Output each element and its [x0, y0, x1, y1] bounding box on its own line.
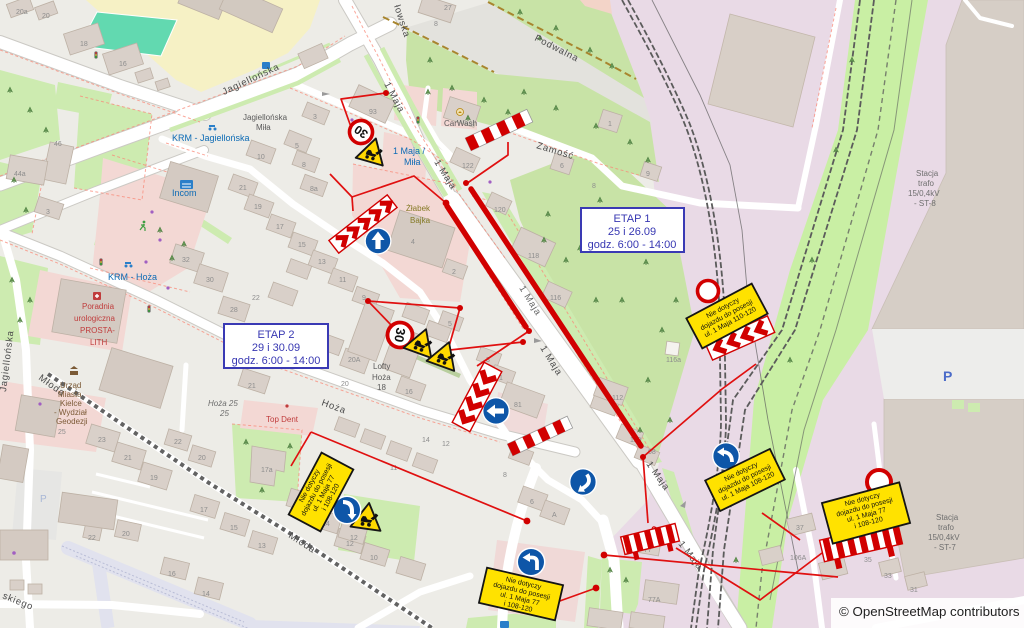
- svg-text:15/0,4kV: 15/0,4kV: [908, 189, 940, 198]
- svg-text:urologiczna: urologiczna: [74, 314, 115, 323]
- svg-text:12: 12: [442, 441, 450, 448]
- svg-text:44a: 44a: [14, 171, 26, 178]
- svg-text:8: 8: [302, 162, 306, 169]
- svg-text:A: A: [552, 512, 557, 519]
- svg-text:31: 31: [910, 587, 918, 594]
- svg-text:27: 27: [444, 5, 452, 12]
- svg-text:93: 93: [369, 109, 377, 116]
- svg-text:15: 15: [230, 525, 238, 532]
- svg-text:28: 28: [230, 307, 238, 314]
- svg-text:3: 3: [313, 114, 317, 121]
- svg-text:9: 9: [646, 171, 650, 178]
- svg-text:14: 14: [422, 437, 430, 444]
- svg-text:P: P: [943, 368, 952, 384]
- svg-text:32: 32: [182, 257, 190, 264]
- svg-text:CarWash: CarWash: [444, 119, 477, 128]
- svg-text:29 i 30.09: 29 i 30.09: [252, 342, 300, 354]
- svg-text:Geodezji: Geodezji: [56, 417, 88, 426]
- svg-text:Urząd: Urząd: [60, 381, 81, 390]
- svg-text:godz. 6:00 - 14:00: godz. 6:00 - 14:00: [232, 355, 321, 367]
- svg-text:8: 8: [434, 21, 438, 28]
- svg-text:20a: 20a: [16, 9, 28, 16]
- svg-text:16: 16: [119, 61, 127, 68]
- svg-text:81: 81: [514, 402, 522, 409]
- svg-text:19: 19: [150, 475, 158, 482]
- svg-text:17: 17: [200, 507, 208, 514]
- svg-text:17a: 17a: [261, 467, 273, 474]
- svg-text:21: 21: [124, 455, 132, 462]
- svg-text:8a: 8a: [310, 186, 318, 193]
- svg-text:15/0,4kV: 15/0,4kV: [928, 533, 960, 542]
- svg-text:Jagiellońska: Jagiellońska: [243, 113, 288, 122]
- svg-text:22: 22: [252, 295, 260, 302]
- svg-text:20A: 20A: [348, 357, 361, 364]
- svg-text:20: 20: [341, 381, 349, 388]
- svg-text:8: 8: [592, 183, 596, 190]
- svg-text:PROSTA-: PROSTA-: [80, 326, 115, 335]
- svg-text:LITH: LITH: [90, 338, 108, 347]
- svg-text:ETAP 2: ETAP 2: [258, 329, 295, 341]
- svg-text:Incom: Incom: [172, 188, 197, 198]
- svg-text:30: 30: [206, 277, 214, 284]
- svg-text:25 i 26.09: 25 i 26.09: [608, 226, 656, 238]
- svg-text:116a: 116a: [666, 357, 681, 364]
- svg-text:18: 18: [80, 41, 88, 48]
- svg-text:118: 118: [528, 253, 539, 260]
- svg-text:Hoża 25: Hoża 25: [208, 399, 238, 408]
- svg-text:13: 13: [318, 259, 326, 266]
- svg-text:15: 15: [298, 242, 306, 249]
- svg-text:Żłabek: Żłabek: [406, 204, 431, 213]
- svg-text:22: 22: [88, 535, 96, 542]
- svg-text:trafo: trafo: [918, 179, 935, 188]
- svg-text:16: 16: [168, 571, 176, 578]
- svg-text:22: 22: [174, 439, 182, 446]
- svg-text:122: 122: [462, 163, 474, 170]
- svg-text:Stacja: Stacja: [936, 513, 959, 522]
- svg-text:19: 19: [254, 204, 262, 211]
- svg-text:77A: 77A: [648, 597, 661, 604]
- svg-text:12: 12: [350, 535, 358, 542]
- svg-text:Top Dent: Top Dent: [266, 415, 299, 424]
- svg-text:8: 8: [503, 472, 507, 479]
- svg-text:16: 16: [405, 389, 413, 396]
- svg-text:P: P: [40, 494, 47, 505]
- svg-text:46: 46: [54, 141, 62, 148]
- svg-text:10: 10: [257, 154, 265, 161]
- svg-text:4: 4: [411, 239, 415, 246]
- svg-text:18: 18: [377, 383, 386, 392]
- svg-text:10: 10: [370, 555, 378, 562]
- svg-text:Miła: Miła: [404, 157, 421, 167]
- svg-text:KRM - Jagiellońska: KRM - Jagiellońska: [172, 133, 250, 143]
- svg-text:godz. 6:00 - 14:00: godz. 6:00 - 14:00: [588, 239, 677, 251]
- svg-text:5: 5: [295, 143, 299, 150]
- svg-text:Lofty: Lofty: [373, 362, 390, 371]
- svg-text:Miła: Miła: [256, 123, 271, 132]
- svg-text:116: 116: [550, 295, 561, 302]
- svg-text:1: 1: [608, 121, 612, 128]
- svg-text:11: 11: [339, 277, 346, 284]
- svg-text:trafo: trafo: [938, 523, 955, 532]
- svg-text:25: 25: [58, 429, 66, 436]
- svg-text:6: 6: [560, 163, 564, 170]
- svg-text:12: 12: [346, 541, 354, 548]
- svg-text:20: 20: [122, 531, 130, 538]
- svg-text:23: 23: [98, 437, 106, 444]
- svg-text:- ST-8: - ST-8: [914, 199, 936, 208]
- svg-text:5: 5: [448, 321, 452, 328]
- svg-text:1 Maja /: 1 Maja /: [393, 146, 426, 156]
- svg-text:14: 14: [202, 591, 210, 598]
- svg-text:25: 25: [219, 409, 229, 418]
- svg-text:- ST-7: - ST-7: [934, 543, 956, 552]
- svg-text:30: 30: [391, 327, 408, 344]
- svg-text:Bajka: Bajka: [410, 216, 431, 225]
- svg-text:- Wydział: - Wydział: [54, 408, 87, 417]
- svg-text:KRM - Hoża: KRM - Hoża: [108, 272, 157, 282]
- svg-text:2: 2: [452, 269, 456, 276]
- svg-text:6: 6: [530, 499, 534, 506]
- svg-text:© OpenStreetMap contributors: © OpenStreetMap contributors: [839, 604, 1020, 619]
- svg-text:21: 21: [248, 383, 256, 390]
- svg-text:20: 20: [198, 455, 206, 462]
- svg-text:106A: 106A: [790, 555, 807, 562]
- svg-text:37: 37: [796, 525, 804, 532]
- svg-text:17: 17: [276, 224, 284, 231]
- svg-text:13: 13: [258, 543, 266, 550]
- svg-text:Poradnia: Poradnia: [82, 302, 115, 311]
- svg-text:35: 35: [864, 557, 872, 564]
- svg-text:3: 3: [46, 209, 50, 216]
- svg-text:Kielce: Kielce: [60, 399, 82, 408]
- svg-text:Hoża: Hoża: [372, 373, 391, 382]
- svg-text:21: 21: [239, 185, 247, 192]
- svg-text:20: 20: [42, 13, 50, 20]
- svg-text:33: 33: [884, 573, 892, 580]
- svg-text:ETAP 1: ETAP 1: [614, 213, 651, 225]
- svg-text:Stacja: Stacja: [916, 169, 939, 178]
- svg-text:Miasta: Miasta: [58, 390, 82, 399]
- svg-text:120: 120: [494, 207, 506, 214]
